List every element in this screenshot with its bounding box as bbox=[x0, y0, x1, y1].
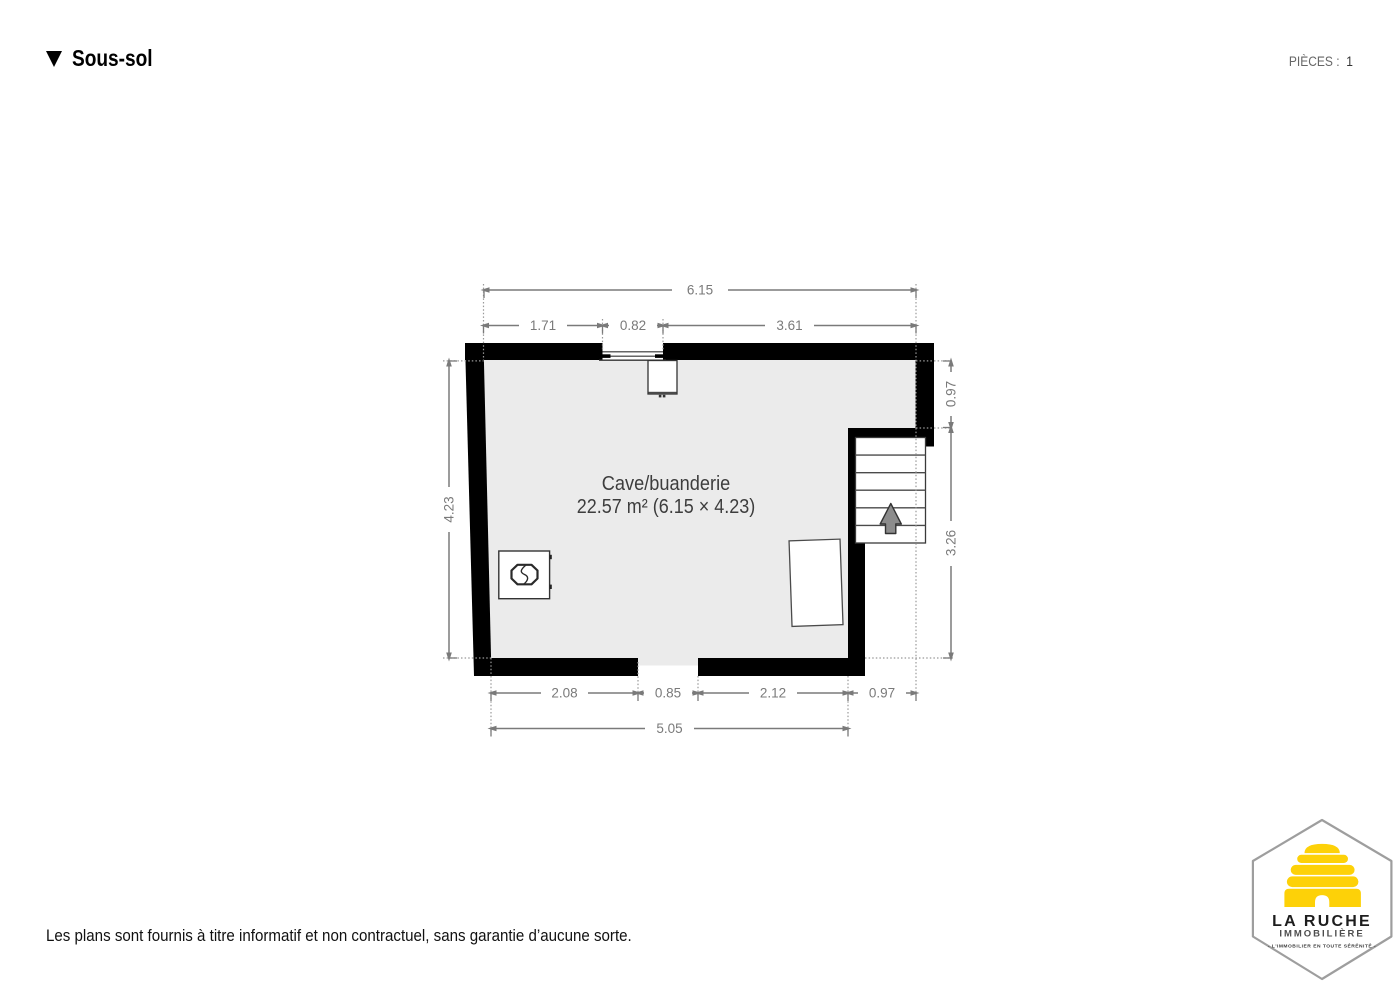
svg-text:0.85: 0.85 bbox=[655, 686, 681, 701]
svg-text:0.97: 0.97 bbox=[869, 686, 895, 701]
svg-text:1.71: 1.71 bbox=[530, 318, 556, 333]
svg-text:3.26: 3.26 bbox=[944, 530, 959, 556]
svg-text:LA RUCHE: LA RUCHE bbox=[1272, 913, 1372, 930]
svg-text:3.61: 3.61 bbox=[776, 318, 802, 333]
svg-text:0.97: 0.97 bbox=[944, 381, 959, 407]
svg-text:2.08: 2.08 bbox=[551, 686, 577, 701]
svg-text:2.12: 2.12 bbox=[760, 686, 786, 701]
svg-text:22.57 m² (6.15 × 4.23): 22.57 m² (6.15 × 4.23) bbox=[577, 496, 756, 518]
svg-text:6.15: 6.15 bbox=[687, 283, 713, 298]
svg-text:4.23: 4.23 bbox=[442, 496, 457, 522]
svg-text:5.05: 5.05 bbox=[656, 721, 682, 736]
svg-text:IMMOBILIÈRE: IMMOBILIÈRE bbox=[1279, 929, 1364, 940]
svg-text:0.82: 0.82 bbox=[620, 318, 646, 333]
svg-text:Cave/buanderie: Cave/buanderie bbox=[602, 473, 731, 495]
